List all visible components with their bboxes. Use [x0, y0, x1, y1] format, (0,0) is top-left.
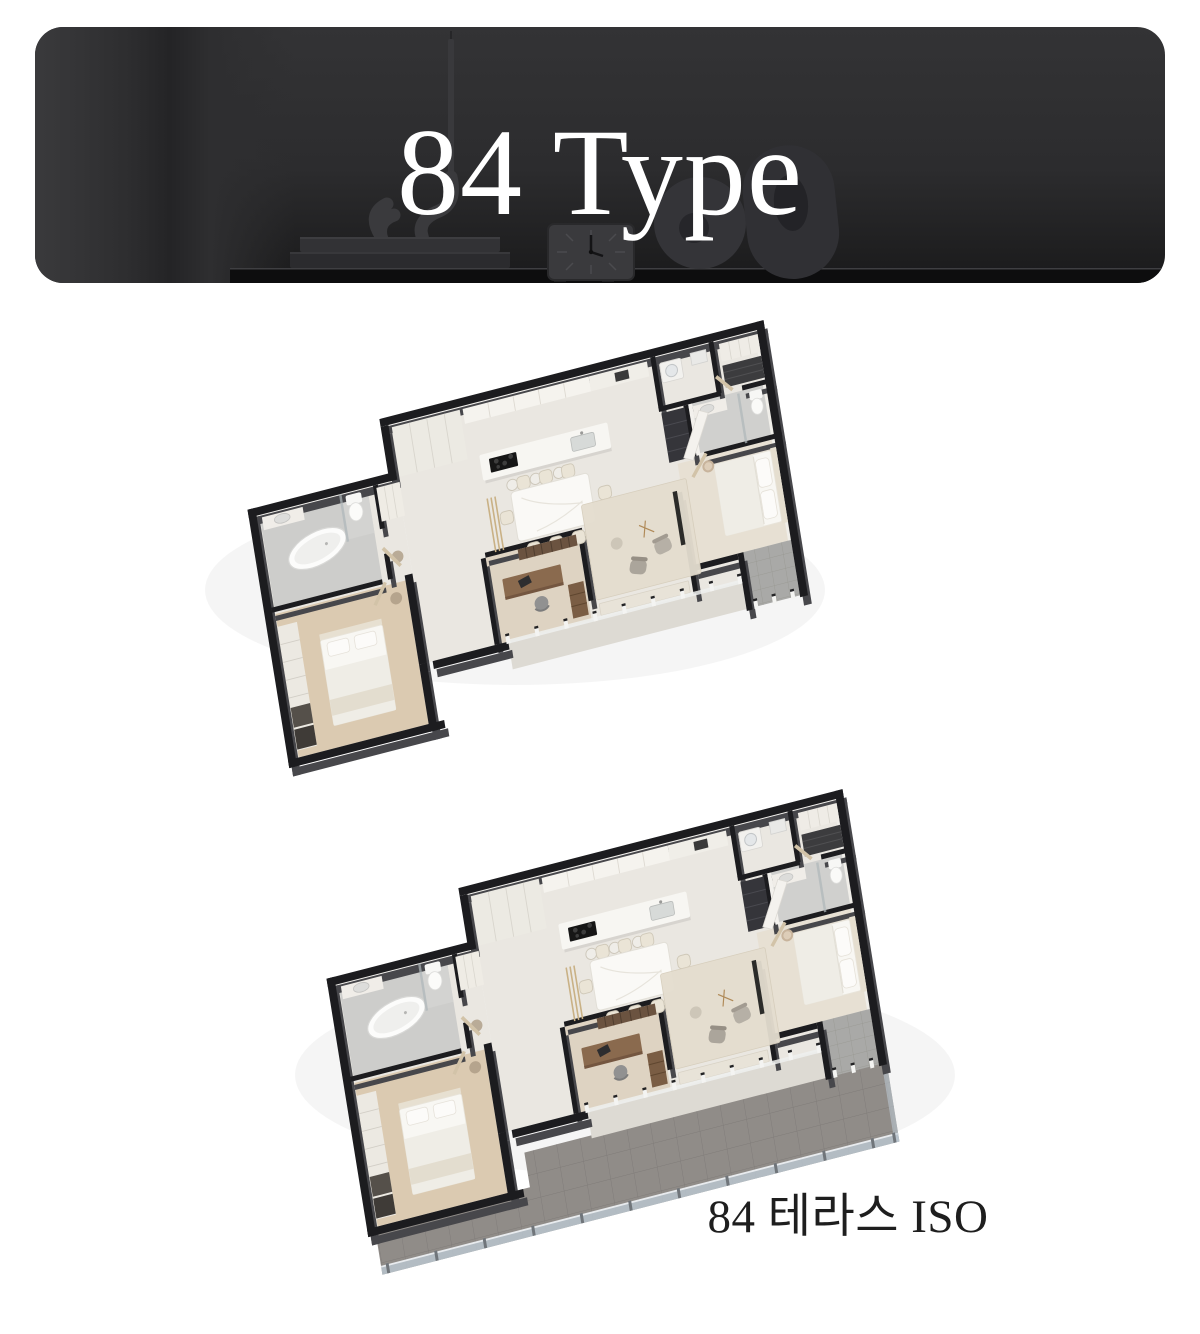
terrace-caption: 84 테라스 ISO: [648, 1190, 1048, 1244]
floor-plan-top-iso: [239, 319, 818, 777]
floor-plans-illustration: [0, 0, 1200, 1334]
page: 84 Type: [0, 0, 1200, 1334]
